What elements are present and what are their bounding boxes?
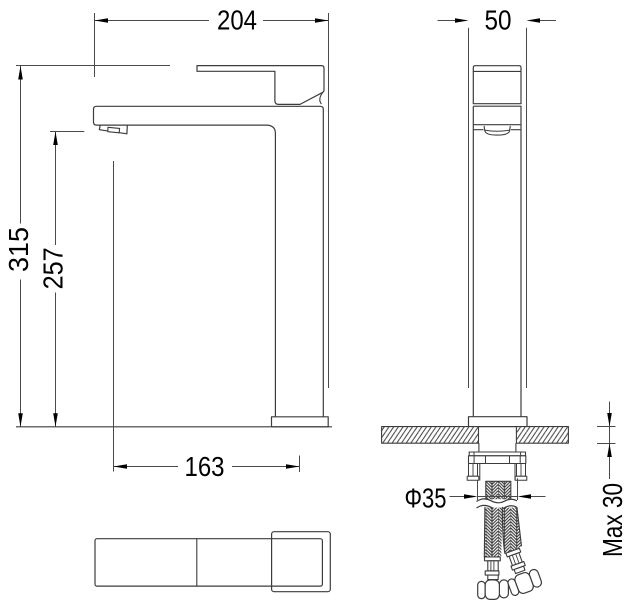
svg-text:Φ35: Φ35 xyxy=(405,482,447,513)
svg-text:163: 163 xyxy=(185,451,225,482)
svg-text:204: 204 xyxy=(217,5,257,36)
svg-text:315: 315 xyxy=(3,227,34,272)
svg-text:257: 257 xyxy=(38,247,69,289)
svg-text:50: 50 xyxy=(485,5,512,36)
svg-text:Max 30: Max 30 xyxy=(597,483,628,557)
